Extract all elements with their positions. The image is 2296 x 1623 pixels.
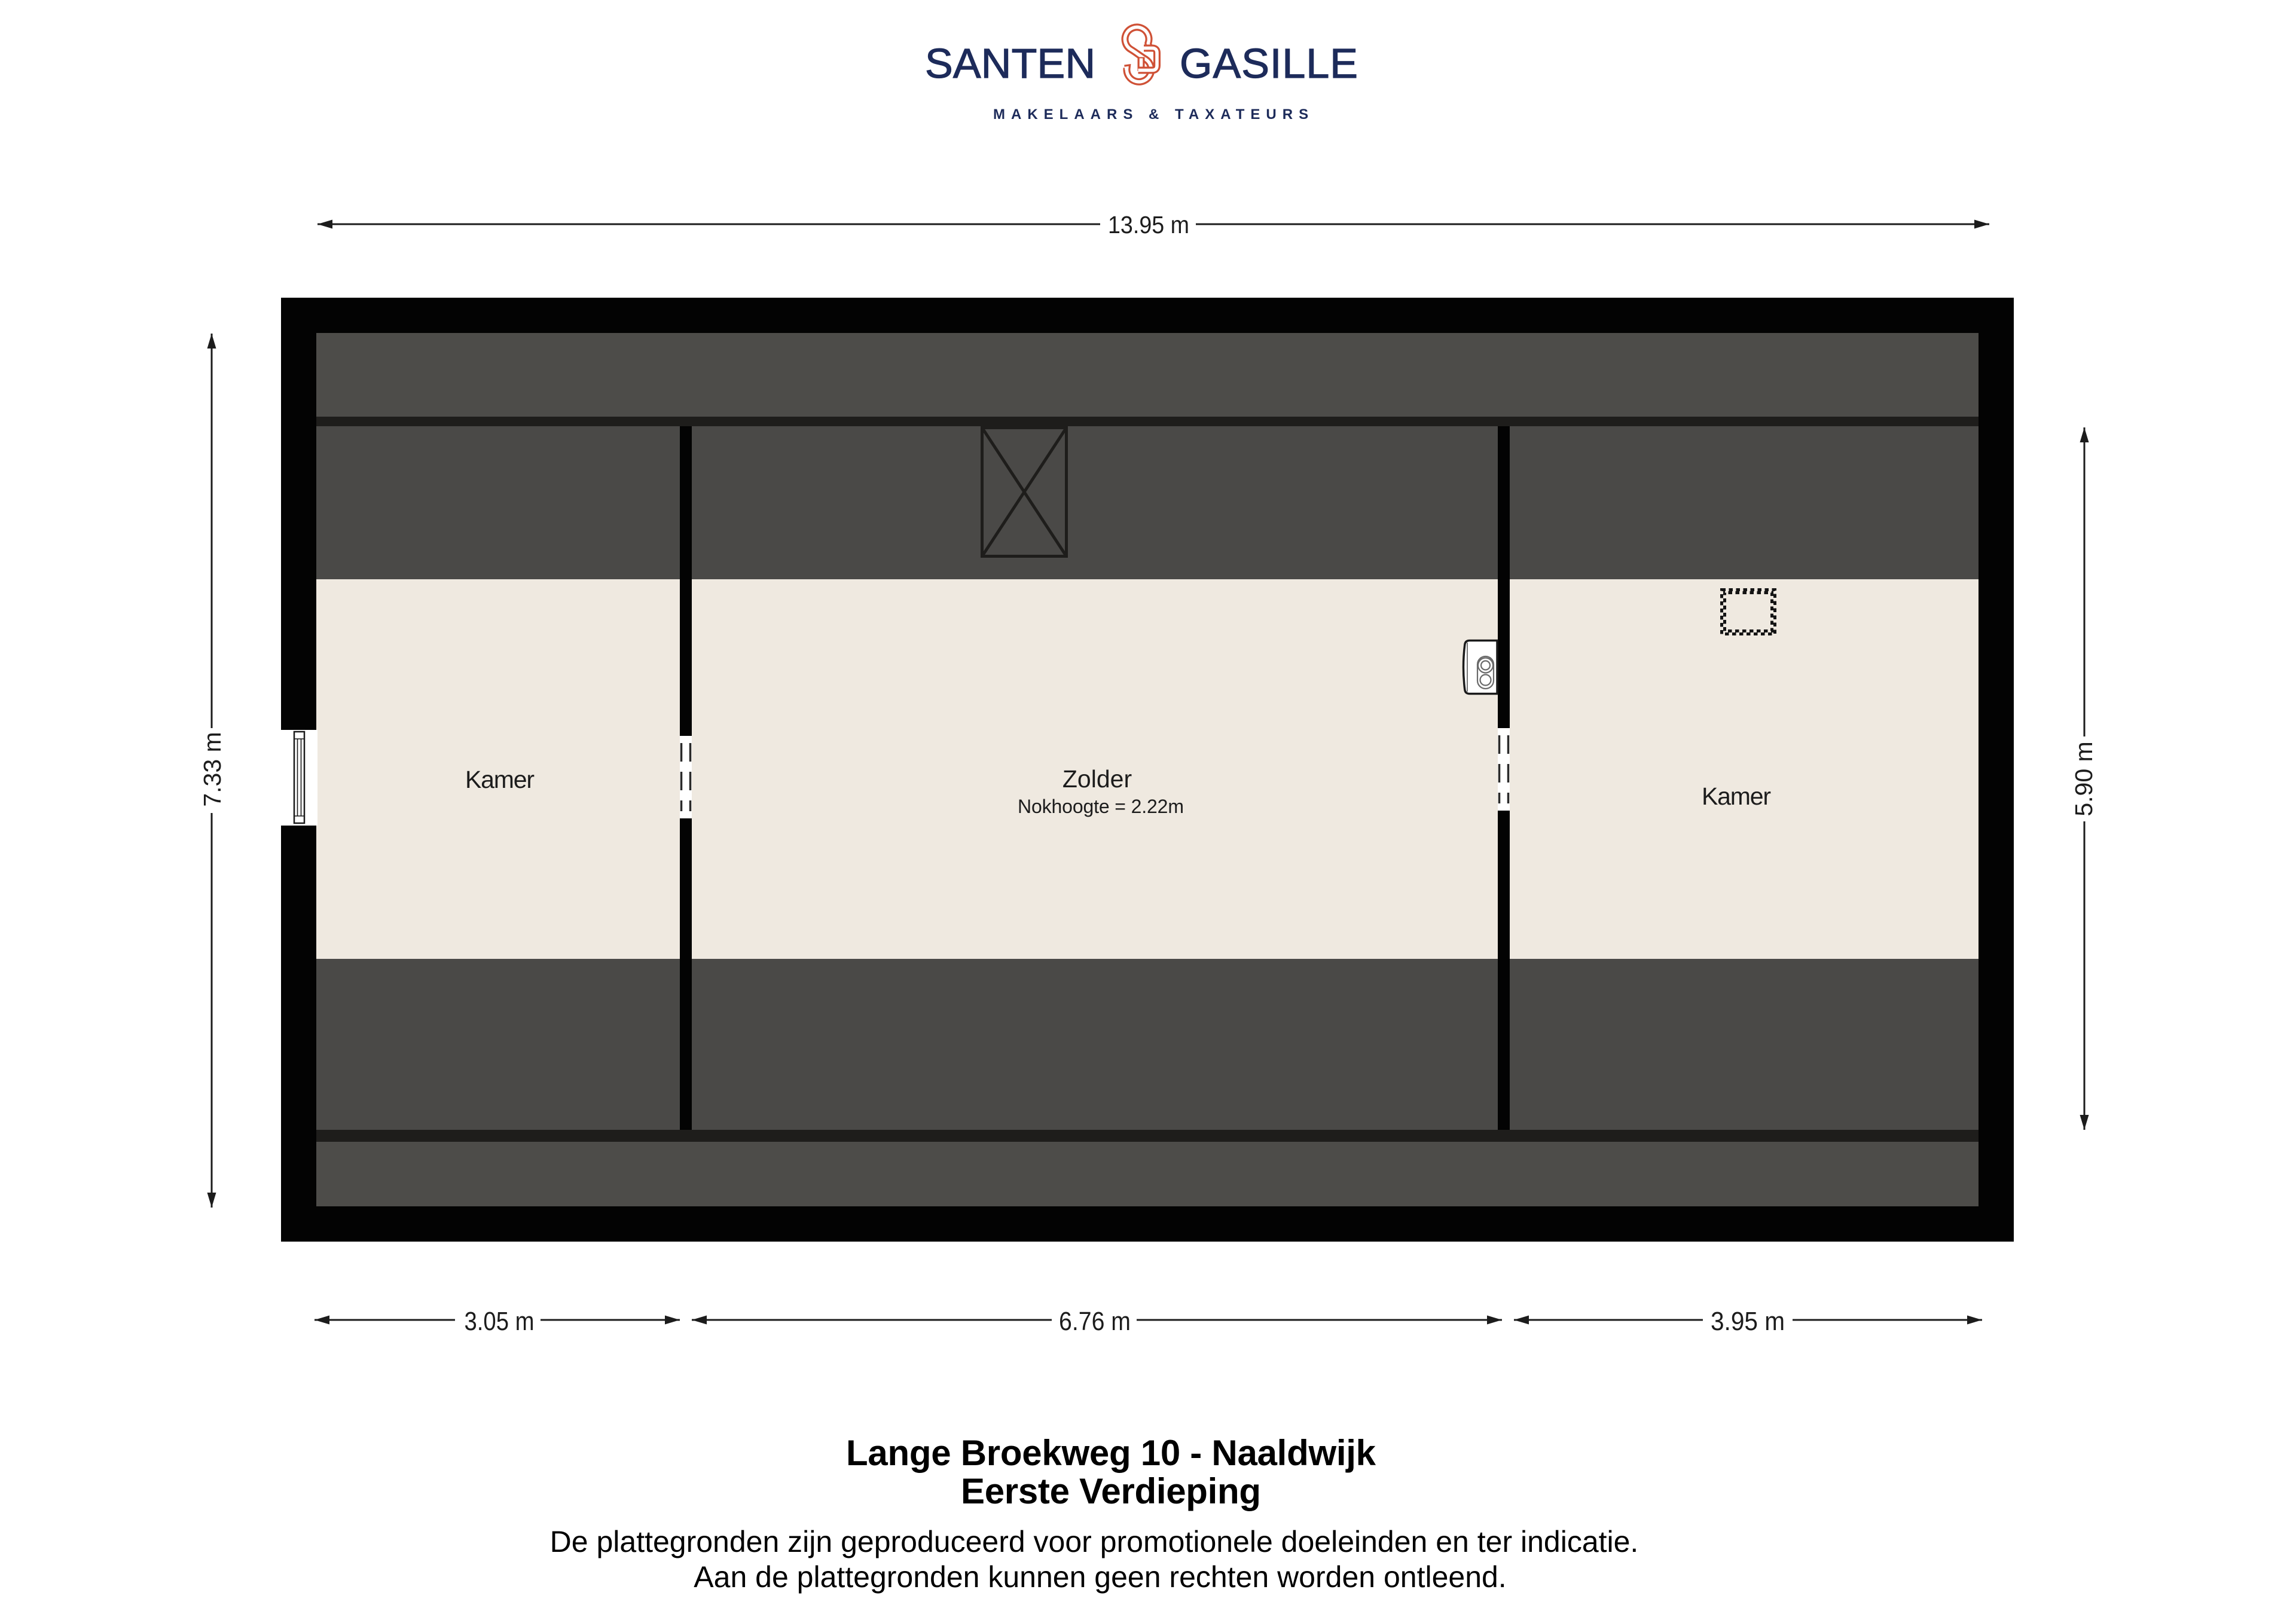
svg-text:GASILLE: GASILLE <box>1180 40 1358 87</box>
svg-text:6.76 m: 6.76 m <box>1059 1307 1131 1336</box>
svg-text:7.33 m: 7.33 m <box>199 732 226 806</box>
svg-text:Eerste Verdieping: Eerste Verdieping <box>961 1471 1261 1511</box>
svg-text:3.95 m: 3.95 m <box>1711 1307 1785 1336</box>
svg-text:Kamer: Kamer <box>465 766 535 793</box>
svg-text:De plattegronden zijn geproduc: De plattegronden zijn geproduceerd voor … <box>550 1525 1639 1558</box>
svg-text:13.95 m: 13.95 m <box>1108 211 1189 239</box>
svg-text:5.90 m: 5.90 m <box>2070 741 2097 816</box>
svg-text:Kamer: Kamer <box>1702 783 1771 810</box>
svg-text:Zolder: Zolder <box>1062 765 1132 793</box>
svg-text:Aan de plattegronden kunnen ge: Aan de plattegronden kunnen geen rechten… <box>694 1560 1506 1594</box>
svg-text:SANTEN: SANTEN <box>925 40 1095 87</box>
svg-text:MAKELAARS & TAXATEURS: MAKELAARS & TAXATEURS <box>993 106 1314 123</box>
svg-text:Nokhoogte = 2.22m: Nokhoogte = 2.22m <box>1018 796 1184 817</box>
svg-text:Lange Broekweg 10 - Naaldwijk: Lange Broekweg 10 - Naaldwijk <box>846 1433 1376 1473</box>
svg-text:3.05 m: 3.05 m <box>465 1307 535 1336</box>
